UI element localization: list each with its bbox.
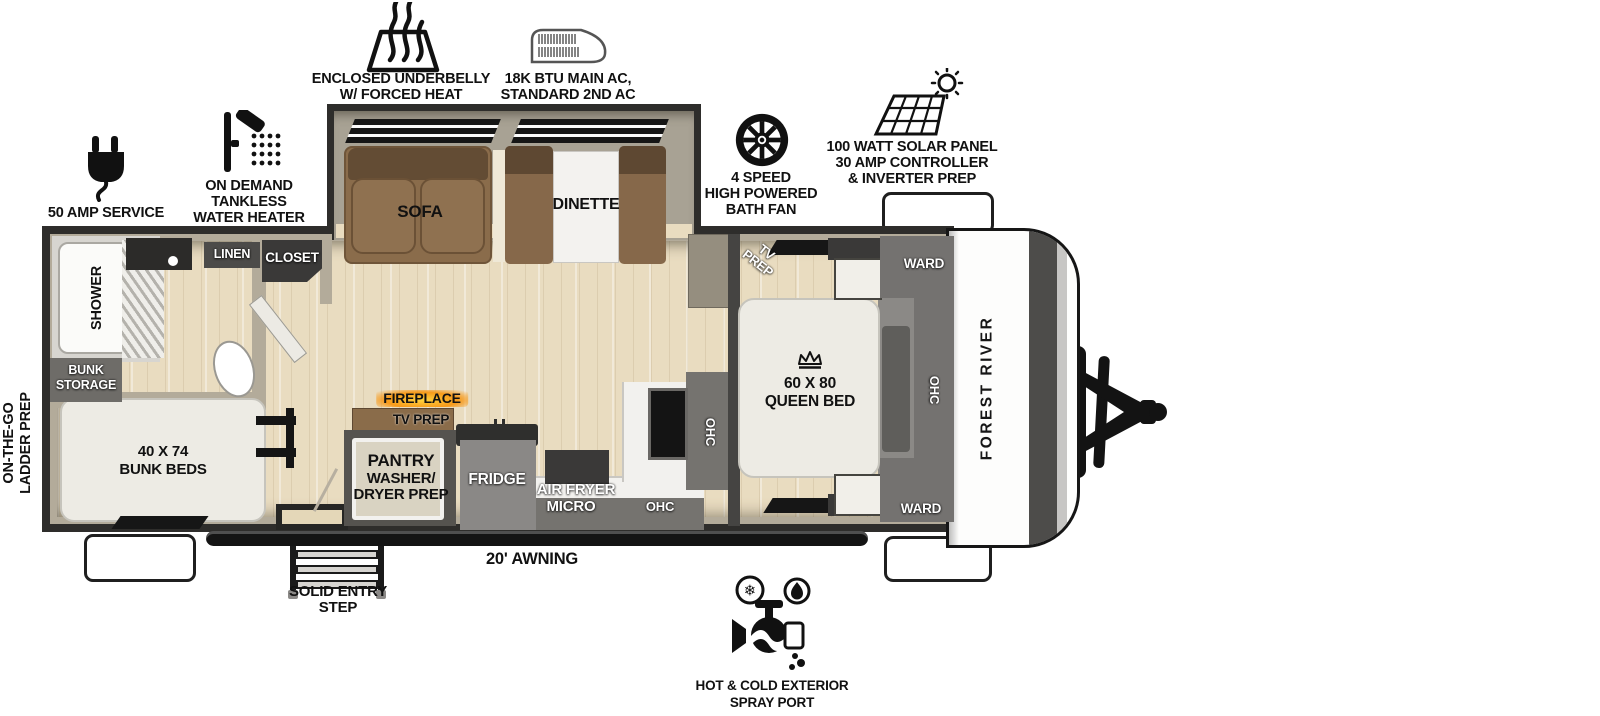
bunk-window-icon — [111, 516, 208, 529]
power-plug-icon — [78, 136, 134, 202]
underbelly-caption-line1: ENCLOSED UNDERBELLY — [312, 72, 491, 88]
water-heater-caption-line3: WATER HEATER — [193, 211, 304, 227]
solar-caption-line1: 100 WATT SOLAR PANEL — [826, 140, 997, 156]
air-fryer-label-line2: MICRO — [547, 499, 596, 515]
bunk-beds-label-line2: BUNK BEDS — [119, 462, 206, 478]
dinette-bench-left — [505, 146, 553, 264]
bunk-storage-label-line2: STORAGE — [56, 379, 116, 393]
brand-name: FOREST RIVER — [980, 316, 997, 461]
tv-prep-living-label: TV PREP — [393, 413, 449, 428]
nightstand-top — [834, 258, 882, 300]
air-fryer-microwave — [545, 450, 609, 484]
awning-label: 20' AWNING — [486, 551, 578, 569]
queen-bed-label-line2: QUEEN BED — [765, 394, 855, 411]
hitch-icon — [1068, 332, 1168, 492]
sofa-label: SOFA — [397, 203, 443, 221]
ward-bottom-label: WARD — [901, 502, 941, 517]
dinette-bench-right — [619, 146, 666, 264]
bunk-storage-label-line1: BUNK — [68, 364, 103, 378]
svg-text:❄: ❄ — [744, 582, 757, 600]
entry-step-label-line1: SOLID ENTRY — [289, 584, 387, 600]
dinette-window-icon — [511, 119, 669, 143]
pantry-label-line3: DRYER PREP — [354, 487, 449, 503]
bedroom-cabinet-top — [688, 234, 730, 308]
bath-vanity — [126, 238, 192, 270]
exterior-pad-rear — [84, 534, 196, 582]
ladder-prep-label: ON-THE-GO LADDER PREP — [1, 392, 35, 494]
forced-heat-icon — [360, 2, 444, 74]
rv-floorplan-diagram: ENCLOSED UNDERBELLY W/ FORCED HEAT 18K B… — [0, 0, 1600, 716]
pantry-label-line1: PANTRY — [368, 452, 435, 470]
solar-caption-line3: & INVERTER PREP — [848, 172, 976, 188]
solar-panel-icon — [868, 68, 964, 140]
underbelly-caption-line2: W/ FORCED HEAT — [340, 88, 463, 104]
kitchen-tv — [648, 388, 688, 460]
entry-step-label-line2: STEP — [319, 600, 357, 616]
solar-caption-line2: 30 AMP CONTROLLER — [836, 156, 989, 172]
shower-head-icon — [218, 110, 284, 176]
spray-port-label-line1: HOT & COLD EXTERIOR — [696, 679, 849, 694]
bath-fan-caption-line2: HIGH POWERED — [705, 187, 818, 203]
spray-port-icon — [732, 600, 814, 670]
water-heater-caption-line1: ON DEMAND — [205, 179, 293, 195]
ac-caption-line1: 18K BTU MAIN AC, — [505, 72, 632, 88]
linen-label: LINEN — [214, 248, 251, 262]
air-fryer-label-line1: AIR FRYER — [537, 482, 615, 498]
fireplace-label: FIREPLACE — [376, 390, 468, 407]
bunk-beds-label-line1: 40 X 74 — [138, 444, 188, 460]
dinette-label: DINETTE — [552, 196, 619, 213]
closet-label: CLOSET — [265, 251, 319, 266]
ohc-kitchen-rear-label: OHC — [646, 500, 674, 514]
bath-fan-icon — [734, 112, 790, 168]
water-heater-caption-line2: TANKLESS — [211, 195, 286, 211]
ac-unit-icon — [527, 24, 611, 68]
crown-icon — [795, 350, 825, 370]
entry-door-threshold — [276, 504, 348, 530]
shower-label: SHOWER — [90, 266, 106, 330]
shore-power-caption: 50 AMP SERVICE — [48, 206, 164, 222]
ac-caption-line2: STANDARD 2ND AC — [501, 88, 636, 104]
awning-bar — [206, 531, 868, 546]
bed-headboard — [878, 290, 918, 486]
ohc-kitchen-wall-label: OHC — [703, 418, 717, 446]
bunk-ladder-icon — [256, 408, 300, 472]
front-cap — [946, 228, 1080, 548]
fridge-label: FRIDGE — [468, 472, 525, 489]
ward-top-label: WARD — [904, 257, 944, 272]
bed-corner-top — [828, 238, 884, 260]
bath-fan-caption-line3: BATH FAN — [726, 203, 797, 219]
sofa-window-icon — [345, 119, 501, 143]
floor-gap-slideout — [493, 150, 505, 262]
pantry-label-line2: WASHER/ — [367, 471, 436, 487]
bath-fan-caption-line1: 4 SPEED — [731, 171, 791, 187]
nightstand-bottom — [834, 474, 882, 516]
ohc-bedroom-label: OHC — [927, 376, 941, 404]
spray-port-label-line2: SPRAY PORT — [730, 696, 814, 711]
queen-bed-label-line1: 60 X 80 — [784, 376, 836, 393]
